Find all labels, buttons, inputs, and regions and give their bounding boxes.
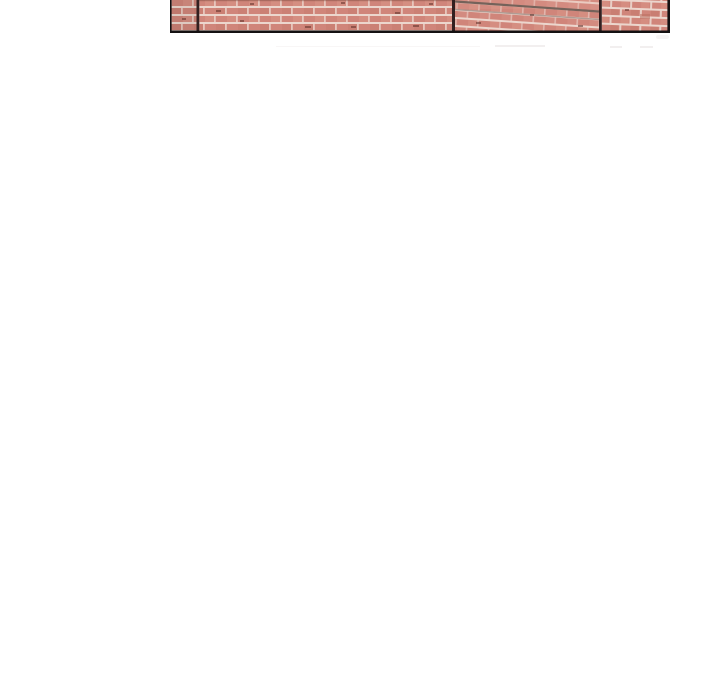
compression-artifact	[656, 35, 669, 39]
compression-artifact	[640, 46, 653, 48]
panel-divider-1	[197, 0, 200, 31]
brick-panel-4	[602, 0, 668, 31]
brick-wall-image	[170, 0, 670, 33]
brick-wall-svg	[170, 0, 670, 33]
compression-artifact	[610, 46, 622, 48]
compression-artifact	[495, 45, 545, 47]
blank-page	[0, 0, 720, 700]
brick-panel-3-slanted	[455, 0, 599, 31]
brick-panel-1	[172, 0, 197, 31]
panel-divider-2	[452, 0, 455, 31]
panel-divider-3	[599, 0, 602, 31]
compression-artifact	[276, 46, 480, 47]
